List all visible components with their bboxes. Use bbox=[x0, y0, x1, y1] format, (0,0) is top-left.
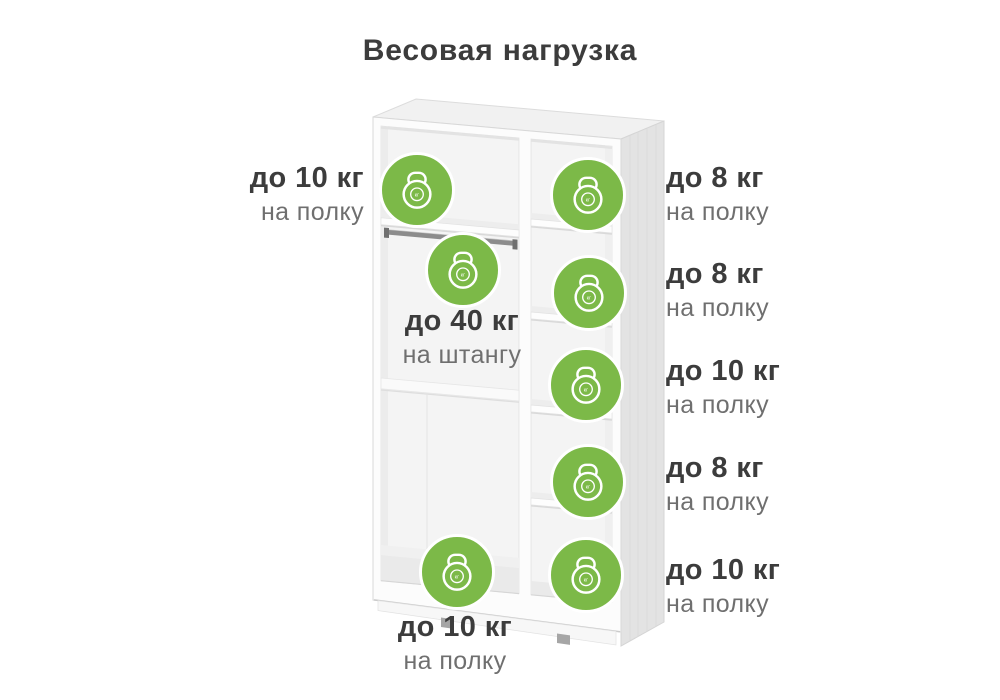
kettlebell-unit: кг bbox=[415, 192, 420, 198]
weight-limit: до 8 кг bbox=[666, 259, 769, 289]
weight-limit: до 10 кг bbox=[345, 612, 565, 642]
kettlebell-icon: кг bbox=[442, 247, 484, 293]
load-label-right-shelf-5: до 10 кг на полку bbox=[666, 555, 780, 617]
weight-badge-rod: кг bbox=[425, 232, 501, 308]
kettlebell-unit: кг bbox=[584, 387, 589, 393]
load-label-right-shelf-2: до 8 кг на полку bbox=[666, 259, 769, 321]
weight-limit: до 10 кг bbox=[666, 356, 780, 386]
weight-limit: до 10 кг bbox=[140, 163, 364, 193]
kettlebell-icon: кг bbox=[567, 459, 609, 505]
weight-load-infographic: Весовая нагрузка bbox=[0, 0, 1000, 700]
kettlebell-icon: кг bbox=[567, 172, 609, 218]
load-target: на полку bbox=[345, 648, 565, 674]
kettlebell-unit: кг bbox=[461, 272, 466, 278]
weight-badge-bottom-shelf: кг bbox=[419, 534, 495, 610]
load-label-rod: до 40 кг на штангу bbox=[352, 306, 572, 368]
load-label-right-shelf-4: до 8 кг на полку bbox=[666, 453, 769, 515]
kettlebell-unit: кг bbox=[586, 197, 591, 203]
kettlebell-icon: кг bbox=[565, 552, 607, 598]
weight-badge-right-shelf-5: кг bbox=[548, 537, 624, 613]
load-label-bottom-shelf: до 10 кг на полку bbox=[345, 612, 565, 674]
load-target: на полку bbox=[666, 489, 769, 515]
load-target: на полку bbox=[666, 392, 780, 418]
kettlebell-unit: кг bbox=[455, 574, 460, 580]
weight-limit: до 40 кг bbox=[352, 306, 572, 336]
kettlebell-icon: кг bbox=[565, 362, 607, 408]
kettlebell-unit: кг bbox=[586, 484, 591, 490]
kettlebell-icon: кг bbox=[436, 549, 478, 595]
load-target: на штангу bbox=[352, 342, 572, 368]
load-label-right-shelf-1: до 8 кг на полку bbox=[666, 163, 769, 225]
kettlebell-unit: кг bbox=[584, 577, 589, 583]
weight-limit: до 8 кг bbox=[666, 453, 769, 483]
weight-badge-top-shelf: кг bbox=[379, 152, 455, 228]
kettlebell-unit: кг bbox=[587, 295, 592, 301]
weight-badge-right-shelf-1: кг bbox=[550, 157, 626, 233]
cabinet-side-panel bbox=[621, 106, 664, 650]
load-label-top-shelf: до 10 кг на полку bbox=[140, 163, 364, 225]
weight-limit: до 8 кг bbox=[666, 163, 769, 193]
weight-badge-right-shelf-4: кг bbox=[550, 444, 626, 520]
load-target: на полку bbox=[666, 295, 769, 321]
load-target: на полку bbox=[666, 199, 769, 225]
kettlebell-icon: кг bbox=[396, 167, 438, 213]
weight-limit: до 10 кг bbox=[666, 555, 780, 585]
load-target: на полку bbox=[666, 591, 780, 617]
kettlebell-icon: кг bbox=[568, 270, 610, 316]
load-target: на полку bbox=[140, 199, 364, 225]
load-label-right-shelf-3: до 10 кг на полку bbox=[666, 356, 780, 418]
